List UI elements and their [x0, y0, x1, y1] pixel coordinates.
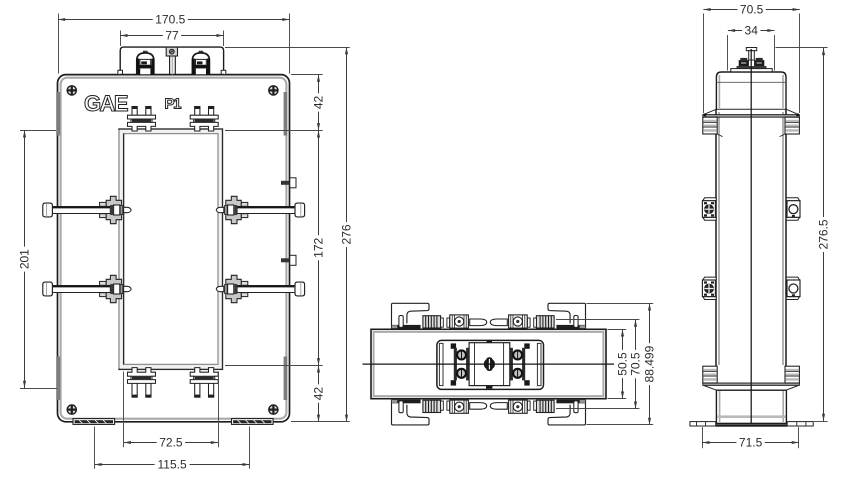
svg-text:170.5: 170.5 [155, 13, 185, 27]
svg-text:70.5: 70.5 [629, 352, 643, 376]
svg-text:201: 201 [18, 249, 32, 269]
svg-text:172: 172 [312, 237, 326, 257]
svg-text:115.5: 115.5 [158, 458, 187, 472]
svg-text:70.5: 70.5 [740, 3, 764, 17]
svg-text:72.5: 72.5 [159, 436, 183, 450]
svg-text:88.499: 88.499 [643, 345, 657, 382]
svg-text:77: 77 [165, 29, 179, 43]
svg-text:276.5: 276.5 [817, 219, 831, 249]
svg-text:GAE: GAE [84, 91, 128, 116]
svg-text:50.5: 50.5 [616, 352, 630, 376]
svg-text:276: 276 [340, 224, 354, 244]
svg-text:42: 42 [312, 387, 326, 401]
svg-text:P1: P1 [165, 96, 182, 113]
svg-text:71.5: 71.5 [739, 436, 763, 450]
svg-text:34: 34 [745, 24, 759, 38]
svg-text:42: 42 [312, 95, 326, 109]
